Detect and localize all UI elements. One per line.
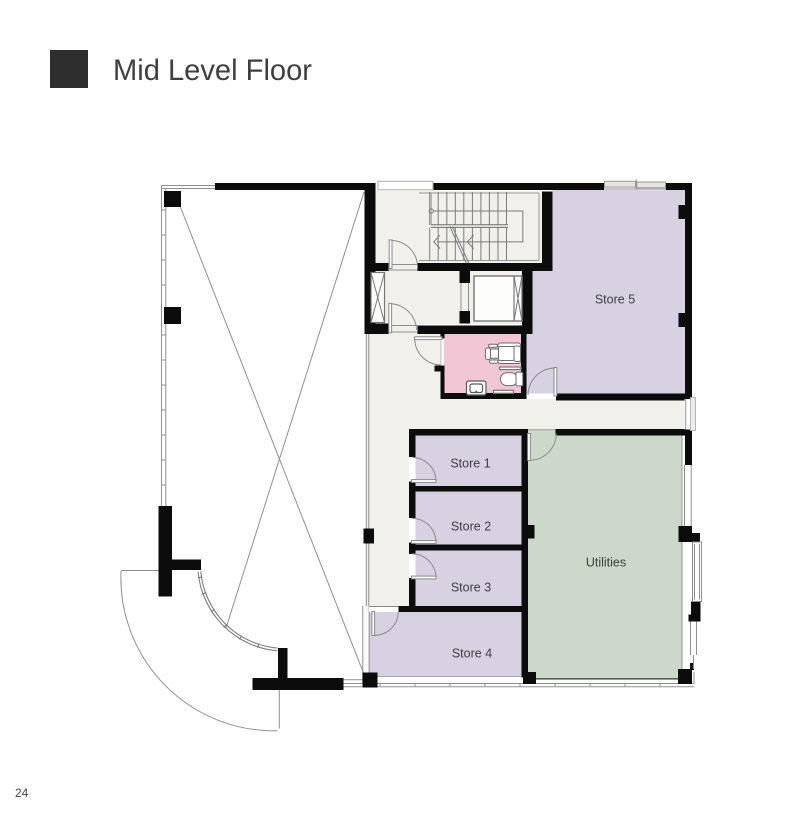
svg-text:24: 24 — [15, 786, 29, 800]
svg-text:Utilities: Utilities — [586, 556, 626, 570]
svg-text:Store 3: Store 3 — [451, 581, 491, 595]
svg-text:Store 5: Store 5 — [595, 293, 635, 307]
svg-text:Store 2: Store 2 — [451, 520, 491, 534]
svg-text:Store 1: Store 1 — [450, 457, 490, 471]
svg-text:Mid Level Floor: Mid Level Floor — [113, 54, 312, 87]
svg-text:Store 4: Store 4 — [452, 647, 492, 661]
